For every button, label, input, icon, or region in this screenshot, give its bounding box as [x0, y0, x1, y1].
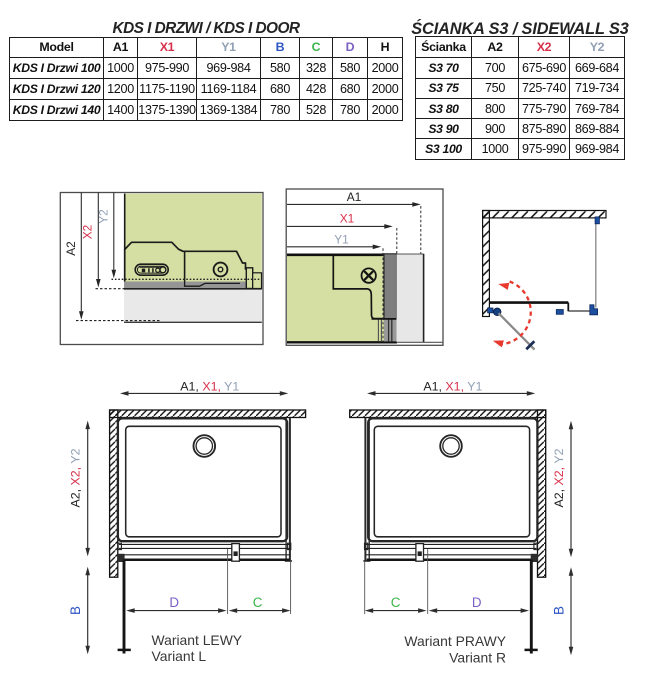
svg-text:C: C — [391, 595, 401, 610]
svg-text:A1, X1, Y1: A1, X1, Y1 — [180, 379, 239, 393]
svg-text:Wariant LEWY: Wariant LEWY — [152, 632, 243, 648]
svg-text:Wariant PRAWY: Wariant PRAWY — [404, 633, 506, 649]
svg-text:A2: A2 — [64, 241, 78, 256]
svg-text:D: D — [169, 595, 179, 610]
svg-text:A1: A1 — [347, 190, 362, 204]
svg-text:A2, X2, Y2: A2, X2, Y2 — [69, 448, 83, 507]
svg-text:Variant R: Variant R — [449, 649, 506, 665]
svg-text:B: B — [551, 606, 566, 615]
svg-text:Y2: Y2 — [97, 209, 111, 224]
svg-text:X2: X2 — [81, 224, 95, 239]
svg-text:Variant L: Variant L — [152, 648, 207, 664]
svg-text:D: D — [472, 595, 482, 610]
svg-text:Y1: Y1 — [334, 233, 349, 247]
svg-text:B: B — [68, 606, 83, 615]
svg-text:C: C — [253, 595, 263, 610]
svg-text:A1, X1, Y1: A1, X1, Y1 — [423, 379, 482, 393]
svg-text:A2, X2, Y2: A2, X2, Y2 — [552, 448, 566, 507]
svg-text:X1: X1 — [340, 211, 355, 225]
